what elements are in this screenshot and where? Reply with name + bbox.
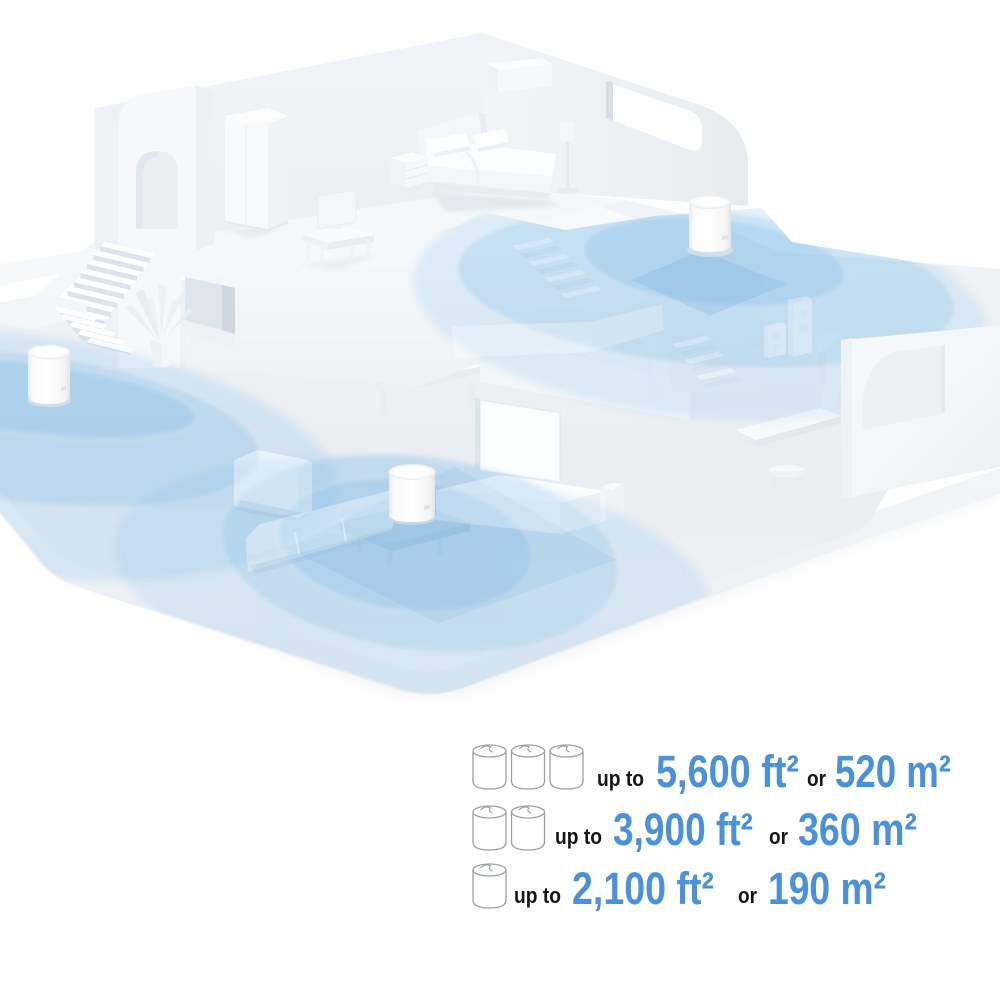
svg-text:up to: up to: [597, 766, 644, 791]
svg-text:up to: up to: [514, 883, 561, 908]
svg-text:2,100 ft²: 2,100 ft²: [572, 863, 714, 914]
svg-text:190 m²: 190 m²: [768, 863, 886, 914]
svg-text:or: or: [769, 824, 788, 849]
svg-text:520 m²: 520 m²: [835, 746, 951, 797]
svg-text:5,600 ft²: 5,600 ft²: [656, 746, 799, 797]
svg-text:or: or: [738, 883, 757, 908]
svg-text:3,900 ft²: 3,900 ft²: [613, 804, 753, 855]
svg-text:up to: up to: [555, 824, 602, 849]
svg-text:360 m²: 360 m²: [798, 804, 917, 855]
svg-text:or: or: [807, 766, 826, 791]
